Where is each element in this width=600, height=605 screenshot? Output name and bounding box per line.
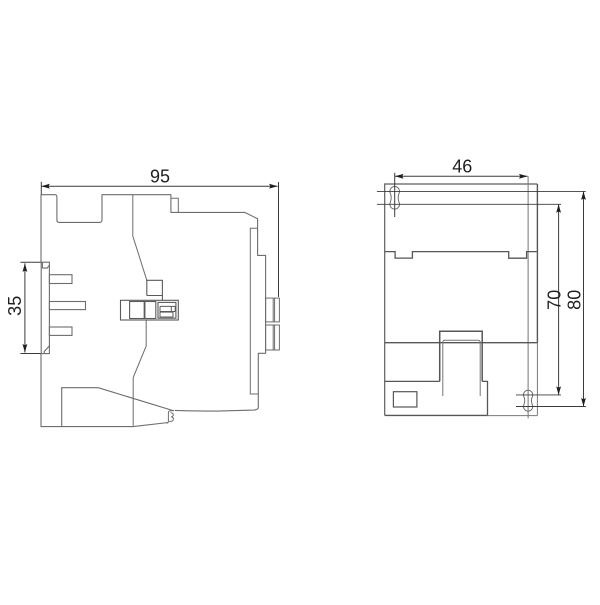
svg-text:80: 80 [565, 290, 585, 310]
svg-text:35: 35 [5, 296, 25, 316]
svg-text:95: 95 [150, 166, 170, 186]
svg-text:70: 70 [545, 290, 565, 310]
svg-text:46: 46 [452, 157, 472, 177]
